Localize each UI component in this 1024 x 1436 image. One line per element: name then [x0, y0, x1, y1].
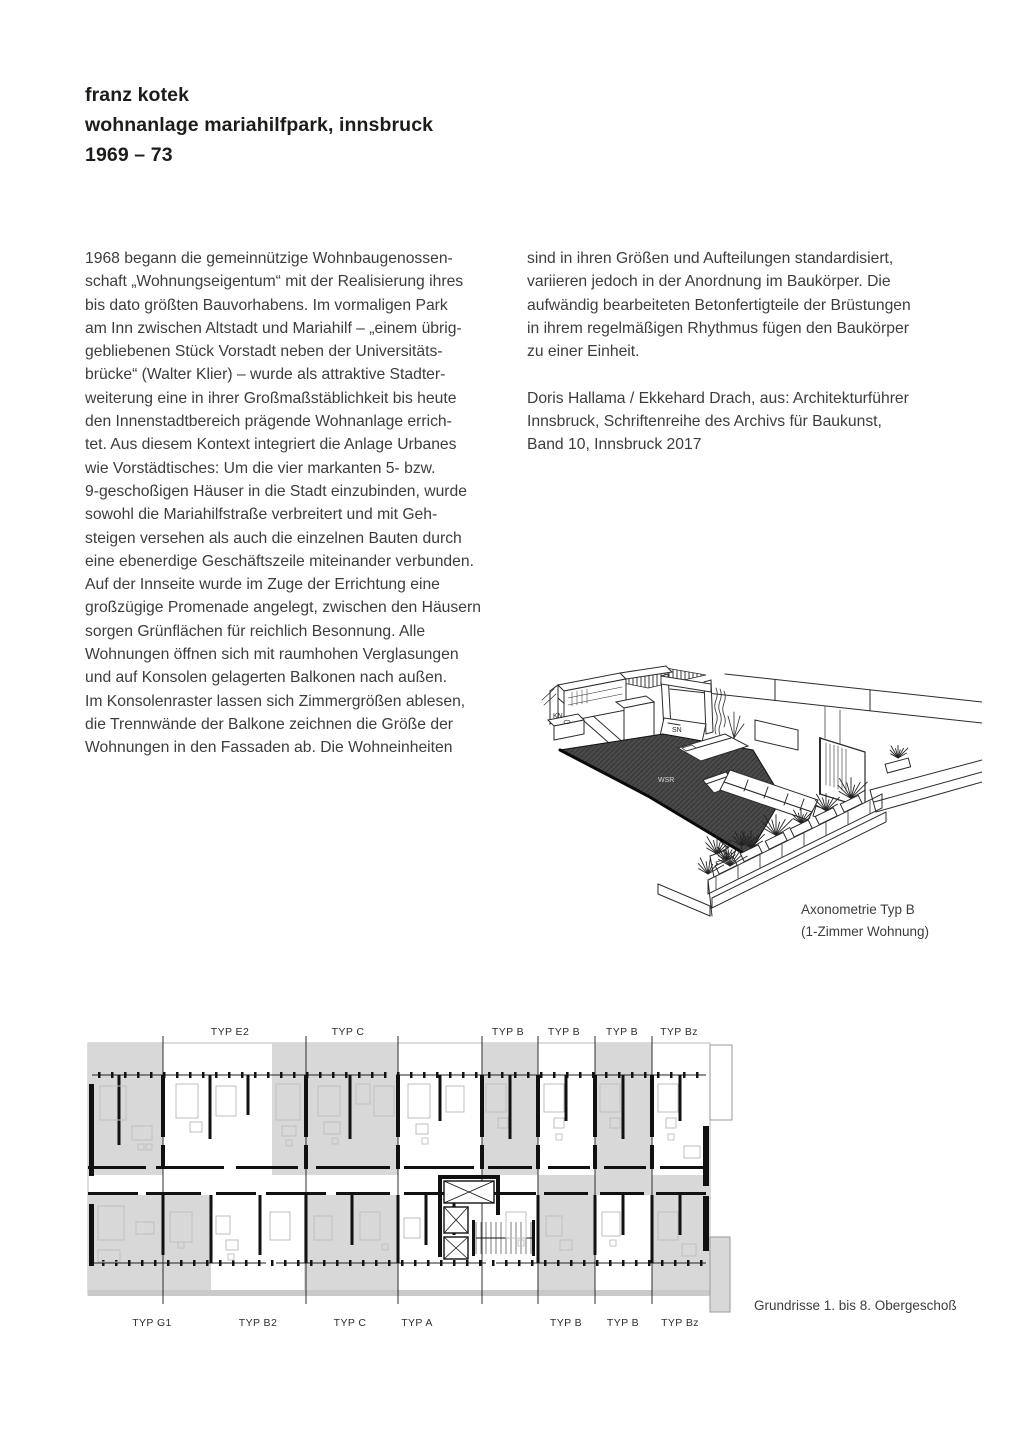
text-line: brücke“ (Walter Klier) – wurde als attra…	[85, 363, 509, 386]
credit-line: Band 10, Innsbruck 2017	[527, 433, 951, 456]
text-line: Wohnungen öffnen sich mit raumhohen Verg…	[85, 643, 509, 666]
plan-type-label-top: TYP B	[548, 1026, 580, 1038]
label-sleeping-niche: SN	[672, 727, 682, 734]
plan-type-label-bottom: TYP C	[334, 1317, 367, 1329]
text-line: weiterung eine in ihrer Großmaßstäblichk…	[85, 387, 509, 410]
floorplan-caption: Grundrisse 1. bis 8. Obergeschoß	[754, 1295, 957, 1317]
text-line: großzügige Promenade angelegt, zwischen …	[85, 596, 509, 619]
text-column-right: sind in ihren Größen und Aufteilungen st…	[527, 247, 951, 457]
plan-type-label-top: TYP B	[492, 1026, 524, 1038]
plan-type-label-top: TYP Bz	[660, 1026, 698, 1038]
sleeping-niche	[660, 674, 725, 742]
document-page: franz kotek wohnanlage mariahilfpark, in…	[0, 0, 1024, 1436]
plan-type-label-bottom: TYP Bz	[661, 1317, 699, 1329]
label-living-room: WSR	[658, 777, 674, 784]
project-years: 1969 – 73	[85, 140, 433, 170]
text-line: bis dato größten Bauvorhabens. Im vormal…	[85, 294, 509, 317]
text-line: gebliebenen Stück Vorstadt neben der Uni…	[85, 340, 509, 363]
text-line: eine ebenerdige Geschäftszeile miteinand…	[85, 550, 509, 573]
text-line: tet. Aus diesem Kontext integriert die A…	[85, 433, 509, 456]
text-line: schaft „Wohnungseigentum“ mit der Realis…	[85, 270, 509, 293]
text-line: sowohl die Mariahilfstraße verbreitert u…	[85, 503, 509, 526]
indoor-plant	[728, 712, 744, 738]
text-line: die Trennwände der Balkone zeichnen die …	[85, 713, 509, 736]
text-column-left: 1968 begann die gemeinnützige Wohnbaugen…	[85, 247, 509, 760]
text-line: den Innenstadtbereich prägende Wohnanlag…	[85, 410, 509, 433]
text-line: sorgen Grünflächen für reichlich Besonnu…	[85, 620, 509, 643]
text-line: Auf der Innseite wurde im Zuge der Erric…	[85, 573, 509, 596]
author-name: franz kotek	[85, 80, 433, 110]
credit-line: Innsbruck, Schriftenreihe des Archivs fü…	[527, 410, 951, 433]
axonometric-caption: Axonometrie Typ B (1-Zimmer Wohnung)	[801, 899, 929, 942]
text-line: in ihrem regelmäßigen Rhythmus fügen den…	[527, 317, 951, 340]
plan-type-label-bottom: TYP A	[401, 1317, 433, 1329]
project-title: wohnanlage mariahilfpark, innsbruck	[85, 110, 433, 140]
text-line: aufwändig bearbeiteten Betonfertigteile …	[527, 294, 951, 317]
text-line: wie Vorstädtisches: Um die vier markante…	[85, 457, 509, 480]
neighbour-balcony	[870, 758, 982, 812]
floorplan-drawing	[86, 1026, 776, 1338]
text-line: am Inn zwischen Altstadt und Mariahilf –…	[85, 317, 509, 340]
text-line: Wohnungen in den Fassaden ab. Die Wohnei…	[85, 736, 509, 759]
plan-type-label-bottom: TYP B	[550, 1317, 582, 1329]
text-line: zu einer Einheit.	[527, 340, 951, 363]
text-line: Im Konsolenraster lassen sich Zimmergröß…	[85, 690, 509, 713]
plan-type-label-top: TYP B	[606, 1026, 638, 1038]
text-line: variieren jedoch in der Anordnung im Bau…	[527, 270, 951, 293]
plan-type-label-bottom: TYP B	[607, 1317, 639, 1329]
plan-type-label-top: TYP C	[332, 1026, 365, 1038]
right-wall-slab	[820, 706, 865, 808]
plan-type-label-bottom: TYP G1	[132, 1317, 172, 1329]
text-line: und auf Konsolen gelagerten Balkonen nac…	[85, 666, 509, 689]
text-line: 9-geschoßigen Häuser in die Stadt einzub…	[85, 480, 509, 503]
axo-caption-line1: Axonometrie Typ B	[801, 899, 929, 921]
text-line: sind in ihren Größen und Aufteilungen st…	[527, 247, 951, 270]
plan-type-label-bottom: TYP B2	[239, 1317, 277, 1329]
label-kitchen-niche: KN	[553, 713, 563, 720]
wall-frame	[755, 720, 798, 750]
title-block: franz kotek wohnanlage mariahilfpark, in…	[85, 80, 433, 170]
credit-line: Doris Hallama / Ekkehard Drach, aus: Arc…	[527, 387, 951, 410]
axo-caption-line2: (1-Zimmer Wohnung)	[801, 921, 929, 943]
text-line: steigen versehen als auch die einzelnen …	[85, 527, 509, 550]
plan-type-label-top: TYP E2	[211, 1026, 249, 1038]
paragraph-spacer	[527, 363, 951, 386]
floorplan-figure: TYP E2TYP CTYP BTYP BTYP BTYP BzTYP G1TY…	[86, 1026, 776, 1338]
text-line: 1968 begann die gemeinnützige Wohnbaugen…	[85, 247, 509, 270]
